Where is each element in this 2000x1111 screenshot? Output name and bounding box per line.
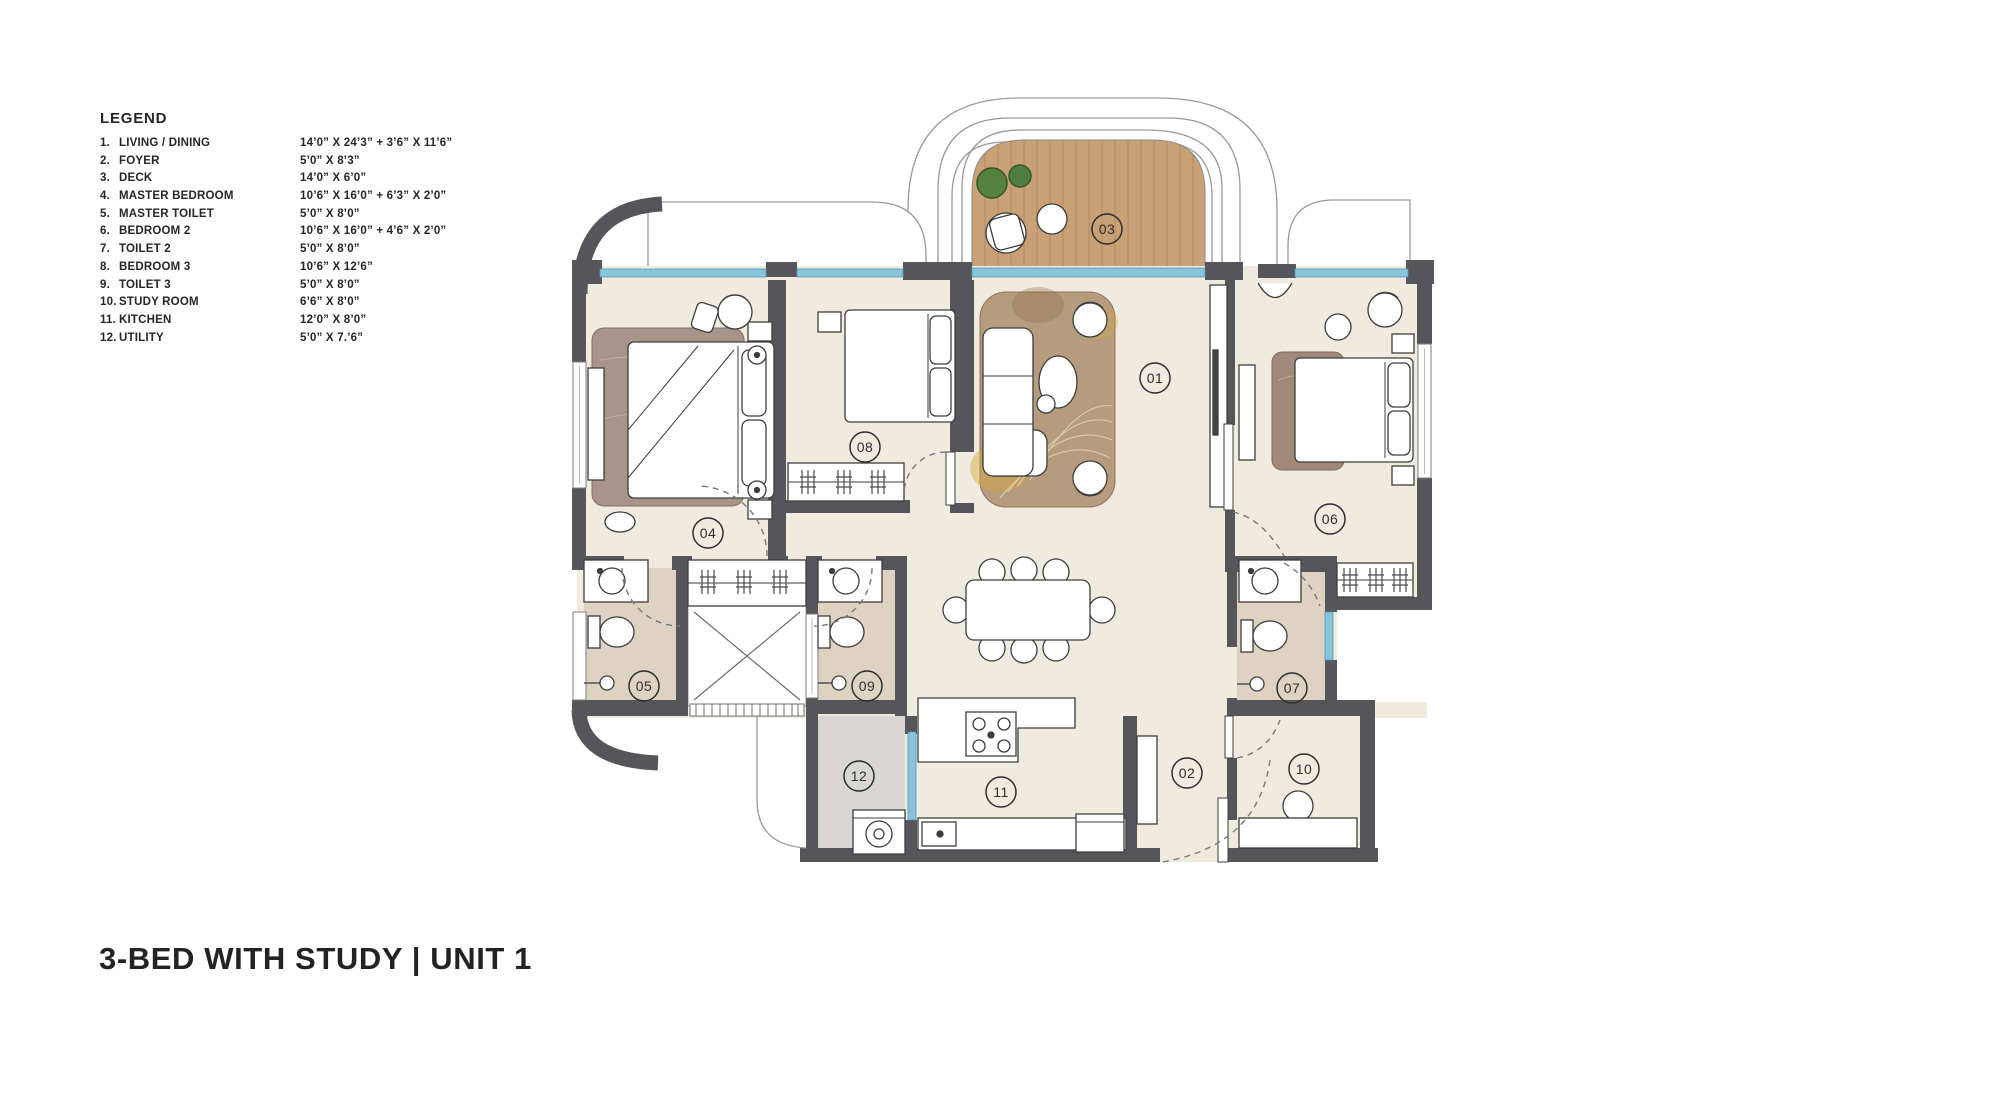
shower-icon	[600, 676, 614, 690]
console	[588, 368, 604, 480]
wc	[600, 617, 634, 647]
wc	[1241, 620, 1253, 652]
master-wardrobe	[688, 560, 806, 606]
utility-furniture	[853, 810, 905, 854]
appliance	[1076, 814, 1124, 852]
wc	[818, 616, 830, 648]
svg-text:11: 11	[993, 784, 1009, 800]
door-leaf-bedroom2	[1224, 424, 1233, 510]
svg-text:08: 08	[857, 439, 874, 455]
svg-text:07: 07	[1284, 680, 1301, 696]
desk	[1239, 365, 1255, 460]
glass-deck-door	[972, 268, 1205, 277]
plant-icon	[977, 168, 1007, 198]
shower-icon	[1250, 677, 1264, 691]
nightstand	[818, 312, 841, 332]
glass-band	[600, 269, 766, 277]
coffee-table	[1037, 395, 1055, 413]
glass-band	[1295, 269, 1408, 277]
deck	[972, 138, 1205, 270]
svg-text:04: 04	[700, 525, 717, 541]
nightstand	[748, 322, 772, 341]
svg-text:05: 05	[636, 678, 653, 694]
plant-icon	[1009, 165, 1031, 187]
floor-plan-page: LEGEND 1.LIVING / DINING 14’0” X 24’3” +…	[0, 0, 2000, 1111]
door-leaf-study	[1225, 716, 1233, 758]
glass-band	[797, 269, 903, 277]
ledge-left	[648, 202, 926, 268]
floor-plan-drawing: 010203040506070809101112	[0, 0, 2000, 1111]
basin	[833, 568, 859, 594]
wc	[588, 616, 600, 648]
dining-table	[966, 580, 1090, 640]
svg-text:06: 06	[1322, 511, 1339, 527]
shower-icon	[832, 676, 846, 690]
study-desk	[1239, 818, 1357, 848]
side-table	[1325, 314, 1351, 340]
pouf	[605, 512, 635, 532]
svg-text:02: 02	[1179, 765, 1196, 781]
nightstand	[1392, 466, 1414, 485]
nightstand	[748, 500, 772, 519]
door-leaf-bedroom3	[946, 452, 955, 505]
svg-text:01: 01	[1147, 370, 1164, 386]
svg-text:09: 09	[859, 678, 876, 694]
shaft-hatch	[690, 704, 804, 716]
deck-table	[1037, 204, 1067, 234]
glass-utility	[908, 732, 916, 820]
tv-icon	[1213, 350, 1218, 435]
svg-text:10: 10	[1296, 761, 1313, 777]
glass-toilet2	[1325, 612, 1333, 660]
wc	[1253, 621, 1287, 651]
nightstand	[1392, 334, 1414, 353]
svg-text:03: 03	[1099, 221, 1116, 237]
ledge-right	[1288, 200, 1410, 268]
window-master-toilet	[573, 612, 586, 700]
desk-chair	[1283, 791, 1313, 821]
svg-text:12: 12	[851, 768, 868, 784]
lobby-arc	[757, 716, 806, 848]
basin	[1252, 568, 1278, 594]
shoe-cabinet	[1137, 736, 1157, 824]
door-leaf-main-entry	[1218, 798, 1228, 862]
sofa	[983, 328, 1033, 476]
